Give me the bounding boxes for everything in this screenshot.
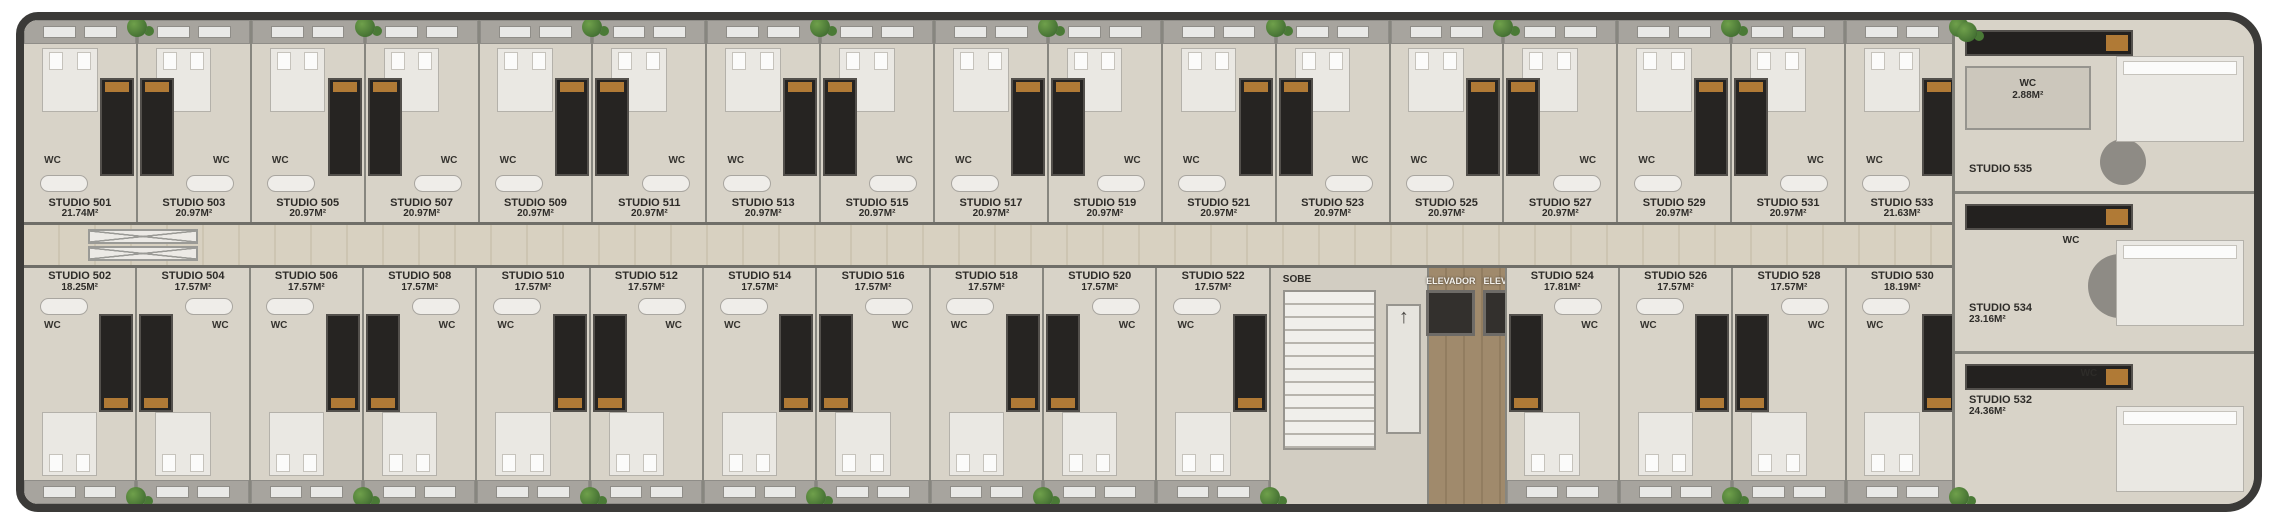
bathtub	[1092, 298, 1140, 315]
crossed-shaft-marker	[88, 229, 198, 244]
bathtub	[185, 298, 233, 315]
bathtub	[412, 298, 460, 315]
plant-icon	[580, 487, 600, 507]
bed	[42, 412, 97, 476]
plant-icon	[1721, 17, 1741, 37]
wc-label: WC	[271, 320, 288, 331]
studio-unit: WC STUDIO 523 20.97M²	[1277, 20, 1391, 222]
plant-icon	[1722, 487, 1742, 507]
studio-unit: WC STUDIO 509 20.97M²	[480, 20, 594, 222]
bed	[2116, 406, 2244, 492]
studio-unit: WC STUDIO 520 17.57M²	[1044, 268, 1157, 504]
bed	[725, 48, 781, 112]
wc-label: WC	[1411, 155, 1428, 166]
bathtub	[40, 175, 88, 192]
unit-label: STUDIO 517 20.97M²	[935, 198, 1047, 220]
wc-label: WC	[439, 320, 456, 331]
elevator-label: ELEVADOR	[1426, 276, 1475, 286]
studio-unit: WC STUDIO 511 20.97M²	[593, 20, 707, 222]
unit-area: 17.57M²	[931, 283, 1042, 294]
wc-label: WC	[896, 155, 913, 166]
plant-icon	[353, 487, 373, 507]
bed	[953, 48, 1009, 112]
unit-name: STUDIO 504	[137, 271, 248, 283]
kitchen-block	[819, 314, 853, 412]
bathtub	[1781, 298, 1829, 315]
unit-area: 23.16M²	[1969, 314, 2032, 325]
bed	[495, 412, 550, 476]
unit-area: 20.97M²	[821, 209, 933, 220]
unit-name: STUDIO 512	[591, 271, 702, 283]
bathtub	[267, 175, 315, 192]
unit-label: STUDIO 516 17.57M²	[817, 271, 928, 293]
balcony-window	[1163, 20, 1275, 44]
studio-unit: WC STUDIO 506 17.57M²	[251, 268, 364, 504]
studio-unit: WC STUDIO 515 20.97M²	[821, 20, 935, 222]
studio-unit: WC STUDIO 531 20.97M²	[1732, 20, 1846, 222]
unit-name: STUDIO 506	[251, 271, 362, 283]
wc-label: WC	[44, 320, 61, 331]
balcony-window	[1049, 20, 1161, 44]
bathtub	[1636, 298, 1684, 315]
studio-unit: WC STUDIO 516 17.57M²	[817, 268, 930, 504]
studio-unit: WC STUDIO 514 17.57M²	[704, 268, 817, 504]
wc-label: WC	[1183, 155, 1200, 166]
balcony-window	[1504, 20, 1616, 44]
unit-area: 20.97M²	[1049, 209, 1161, 220]
wc-label: WC	[1124, 155, 1141, 166]
unit-area: 20.97M²	[1732, 209, 1844, 220]
plant-icon	[355, 17, 375, 37]
wc-label: WC	[892, 320, 909, 331]
unit-area: 20.97M²	[1163, 209, 1275, 220]
kitchen-block	[1279, 78, 1313, 176]
balcony-window	[252, 20, 364, 44]
unit-label: STUDIO 535	[1969, 163, 2032, 175]
unit-label: STUDIO 531 20.97M²	[1732, 198, 1844, 220]
plant-icon	[1266, 17, 1286, 37]
unit-label: STUDIO 501 21.74M²	[24, 198, 136, 220]
bed	[2116, 56, 2244, 142]
bathtub	[1554, 298, 1602, 315]
balcony-window	[707, 20, 819, 44]
studio-unit: WC STUDIO 519 20.97M²	[1049, 20, 1163, 222]
balcony-window	[477, 480, 588, 504]
studio-unit: WC STUDIO 510 17.57M²	[477, 268, 590, 504]
bathtub	[723, 175, 771, 192]
bottom-studio-row: WC STUDIO 502 18.25M² WC STUDIO 504 17.5…	[24, 268, 1958, 504]
unit-area: 17.57M²	[477, 283, 588, 294]
unit-label: STUDIO 513 20.97M²	[707, 198, 819, 220]
rug	[2100, 139, 2146, 185]
unit-label: STUDIO 505 20.97M²	[252, 198, 364, 220]
bed	[1864, 48, 1920, 112]
bed	[835, 412, 890, 476]
kitchen-block	[1046, 314, 1080, 412]
bed	[1638, 412, 1693, 476]
studio-unit: WC STUDIO 529 20.97M²	[1618, 20, 1732, 222]
balcony-window	[1277, 20, 1389, 44]
unit-area: 20.97M²	[1504, 209, 1616, 220]
wc-label: WC	[1638, 155, 1655, 166]
unit-label: STUDIO 510 17.57M²	[477, 271, 588, 293]
unit-area: 20.97M²	[707, 209, 819, 220]
bathtub	[865, 298, 913, 315]
kitchen-block	[1239, 78, 1273, 176]
unit-area: 17.57M²	[1620, 283, 1731, 294]
kitchen-block	[368, 78, 402, 176]
unit-label: STUDIO 504 17.57M²	[137, 271, 248, 293]
kitchen-block	[1965, 30, 2133, 56]
kitchen-block	[1734, 78, 1768, 176]
unit-name: STUDIO 508	[364, 271, 475, 283]
unit-name: STUDIO 524	[1507, 271, 1618, 283]
kitchen-block	[140, 78, 174, 176]
plant-icon	[806, 487, 826, 507]
balcony-window	[364, 480, 475, 504]
bathtub	[1406, 175, 1454, 192]
plant-icon	[1949, 487, 1969, 507]
elevators: ELEVADOR ELEVADOR	[1426, 276, 1498, 336]
studio-unit: WC STUDIO 533 21.63M²	[1846, 20, 1958, 222]
studio-unit: WC STUDIO 502 18.25M²	[24, 268, 137, 504]
unit-area: 20.97M²	[935, 209, 1047, 220]
bed	[1864, 412, 1919, 476]
wc-label: WC	[1807, 155, 1824, 166]
unit-area: 20.97M²	[1391, 209, 1503, 220]
bed	[949, 412, 1004, 476]
balcony-window	[1620, 480, 1731, 504]
studio-unit: WC STUDIO 513 20.97M²	[707, 20, 821, 222]
unit-label: STUDIO 509 20.97M²	[480, 198, 592, 220]
unit-area: 20.97M²	[1277, 209, 1389, 220]
unit-name: STUDIO 522	[1157, 271, 1268, 283]
unit-name: STUDIO 518	[931, 271, 1042, 283]
unit-name: STUDIO 526	[1620, 271, 1731, 283]
studio-unit: WC STUDIO 517 20.97M²	[935, 20, 1049, 222]
balcony-window	[1732, 20, 1844, 44]
wc-label: WC	[1581, 320, 1598, 331]
kitchen-block	[1922, 314, 1956, 412]
studio-unit: WC STUDIO 508 17.57M²	[364, 268, 477, 504]
bathtub	[946, 298, 994, 315]
unit-label: STUDIO 506 17.57M²	[251, 271, 362, 293]
studio-unit: WC STUDIO 528 17.57M²	[1733, 268, 1846, 504]
balcony-window	[1507, 480, 1618, 504]
wc-label: WC	[441, 155, 458, 166]
kitchen-block	[553, 314, 587, 412]
unit-label: STUDIO 519 20.97M²	[1049, 198, 1161, 220]
unit-label: STUDIO 508 17.57M²	[364, 271, 475, 293]
wc-label: WC	[1967, 78, 2089, 90]
unit-area: 20.97M²	[480, 209, 592, 220]
studio-unit: WC STUDIO 507 20.97M²	[366, 20, 480, 222]
unit-label: STUDIO 532 24.36M²	[1969, 394, 2032, 417]
bed	[42, 48, 98, 112]
unit-label: STUDIO 520 17.57M²	[1044, 271, 1155, 293]
unit-label: STUDIO 503 20.97M²	[138, 198, 250, 220]
studio-unit: WC STUDIO 505 20.97M²	[252, 20, 366, 222]
bathtub	[1780, 175, 1828, 192]
up-arrow-icon: ↑	[1386, 304, 1421, 434]
unit-area: 24.36M²	[1969, 406, 2032, 417]
bathtub	[1862, 298, 1910, 315]
wc-label: WC	[497, 320, 514, 331]
unit-area: 17.57M²	[704, 283, 815, 294]
bathtub	[642, 175, 690, 192]
wc-label: WC	[1640, 320, 1657, 331]
kitchen-block	[326, 314, 360, 412]
bed	[1408, 48, 1464, 112]
unit-label: STUDIO 523 20.97M²	[1277, 198, 1389, 220]
unit-area: 20.97M²	[138, 209, 250, 220]
wc-label: WC	[2081, 368, 2098, 379]
unit-area: 21.74M²	[24, 209, 136, 220]
unit-name: STUDIO 532	[1969, 394, 2032, 406]
unit-label: STUDIO 526 17.57M²	[1620, 271, 1731, 293]
corridor	[24, 222, 1958, 268]
unit-area: 20.97M²	[593, 209, 705, 220]
wc-label: WC	[665, 320, 682, 331]
unit-area: 17.57M²	[591, 283, 702, 294]
bed	[269, 412, 324, 476]
elevator-door	[1483, 290, 1506, 336]
balcony-window	[1044, 480, 1155, 504]
bathtub	[493, 298, 541, 315]
unit-label: STUDIO 522 17.57M²	[1157, 271, 1268, 293]
unit-area: 20.97M²	[1618, 209, 1730, 220]
balcony-window	[591, 480, 702, 504]
bathtub	[495, 175, 543, 192]
bathtub	[266, 298, 314, 315]
unit-label: STUDIO 514 17.57M²	[704, 271, 815, 293]
unit-label: STUDIO 533 21.63M²	[1846, 198, 1958, 220]
bed	[1751, 412, 1806, 476]
unit-area: 20.97M²	[252, 209, 364, 220]
unit-name: STUDIO 520	[1044, 271, 1155, 283]
elevator: ELEVADOR	[1483, 276, 1506, 336]
kitchen-block	[1735, 314, 1769, 412]
bathtub	[1173, 298, 1221, 315]
bathtub	[1178, 175, 1226, 192]
unit-name: STUDIO 535	[1969, 163, 2032, 175]
kitchen-block	[328, 78, 362, 176]
bathtub	[1862, 175, 1910, 192]
wc-label: WC	[951, 320, 968, 331]
wc-label: WC	[500, 155, 517, 166]
unit-name: STUDIO 514	[704, 271, 815, 283]
bed	[382, 412, 437, 476]
bathtub	[951, 175, 999, 192]
unit-label: STUDIO 518 17.57M²	[931, 271, 1042, 293]
unit-area: 18.19M²	[1847, 283, 1958, 294]
bed	[1175, 412, 1230, 476]
unit-area: 17.57M²	[137, 283, 248, 294]
balcony-window	[1618, 20, 1730, 44]
unit-name: STUDIO 530	[1847, 271, 1958, 283]
balcony-window	[251, 480, 362, 504]
balcony-window	[1847, 480, 1958, 504]
balcony-window	[1157, 480, 1268, 504]
bed	[1181, 48, 1237, 112]
kitchen-block	[1011, 78, 1045, 176]
right-wing: WC 2.88M² STUDIO 535 WC STUDIO 534 23.16…	[1952, 20, 2254, 504]
bathtub	[1634, 175, 1682, 192]
studio-unit: WC STUDIO 512 17.57M²	[591, 268, 704, 504]
unit-name: STUDIO 510	[477, 271, 588, 283]
wc-label: WC	[1808, 320, 1825, 331]
wc-label: WC	[2063, 235, 2080, 246]
unit-label: STUDIO 512 17.57M²	[591, 271, 702, 293]
crossed-shaft-marker	[88, 246, 198, 261]
kitchen-block	[1233, 314, 1267, 412]
bathtub	[1553, 175, 1601, 192]
unit-name: STUDIO 528	[1733, 271, 1844, 283]
unit-area: 17.57M²	[1733, 283, 1844, 294]
bathtub	[869, 175, 917, 192]
balcony-window	[138, 20, 250, 44]
unit-area: 18.25M²	[24, 283, 135, 294]
balcony-window	[1391, 20, 1503, 44]
bed	[270, 48, 326, 112]
bathtub	[638, 298, 686, 315]
studio-unit: WC STUDIO 522 17.57M²	[1157, 268, 1270, 504]
unit-area: 17.81M²	[1507, 283, 1618, 294]
unit-label: STUDIO 507 20.97M²	[366, 198, 478, 220]
balcony-window	[1846, 20, 1958, 44]
studio-unit: WC STUDIO 503 20.97M²	[138, 20, 252, 222]
kitchen-block	[366, 314, 400, 412]
elevator-door	[1426, 290, 1475, 336]
stairs-elevator-core: SOBE ↑ ELEVADOR ELEVADOR	[1271, 268, 1507, 504]
unit-area: 17.57M²	[1044, 283, 1155, 294]
bed	[2116, 240, 2244, 326]
floorplan: WC STUDIO 501 21.74M² WC STUDIO 503 20.9…	[0, 0, 2280, 526]
wc-label: WC	[1177, 320, 1194, 331]
kitchen-block	[593, 314, 627, 412]
wc-label: WC	[1867, 320, 1884, 331]
unit-label: STUDIO 524 17.81M²	[1507, 271, 1618, 293]
plant-icon	[127, 17, 147, 37]
elevator: ELEVADOR	[1426, 276, 1475, 336]
studio-unit: WC STUDIO 524 17.81M²	[1507, 268, 1620, 504]
unit-label: STUDIO 529 20.97M²	[1618, 198, 1730, 220]
wc-area: 2.88M²	[1967, 90, 2089, 102]
plant-icon	[1957, 22, 1977, 42]
balcony-window	[24, 480, 135, 504]
studio-unit: WC STUDIO 521 20.97M²	[1163, 20, 1277, 222]
unit-label: STUDIO 525 20.97M²	[1391, 198, 1503, 220]
top-studio-row: WC STUDIO 501 21.74M² WC STUDIO 503 20.9…	[24, 20, 1958, 222]
wc-label: WC	[724, 320, 741, 331]
kitchen-block	[1965, 364, 2133, 390]
wc-label: WC	[727, 155, 744, 166]
bed	[609, 412, 664, 476]
unit-name: STUDIO 516	[817, 271, 928, 283]
wc-label: WC	[668, 155, 685, 166]
kitchen-block	[779, 314, 813, 412]
bed	[155, 412, 210, 476]
studio-unit: WC STUDIO 518 17.57M²	[931, 268, 1044, 504]
unit-area: 20.97M²	[366, 209, 478, 220]
unit-area: 17.57M²	[817, 283, 928, 294]
wc-label: WC	[44, 155, 61, 166]
studio-unit: WC STUDIO 501 21.74M²	[24, 20, 138, 222]
bed	[722, 412, 777, 476]
unit-name: STUDIO 502	[24, 271, 135, 283]
unit-area: 17.57M²	[1157, 283, 1268, 294]
plant-icon	[810, 17, 830, 37]
balcony-window	[704, 480, 815, 504]
wc-label: WC	[1119, 320, 1136, 331]
studio-unit-535: WC 2.88M² STUDIO 535	[1955, 20, 2254, 194]
studio-unit: WC STUDIO 527 20.97M²	[1504, 20, 1618, 222]
balcony-window	[593, 20, 705, 44]
unit-label: STUDIO 534 23.16M²	[1969, 302, 2032, 325]
kitchen-block	[139, 314, 173, 412]
unit-label: STUDIO 530 18.19M²	[1847, 271, 1958, 293]
studio-unit-534: WC STUDIO 534 23.16M²	[1955, 194, 2254, 354]
studio-unit: WC STUDIO 525 20.97M²	[1391, 20, 1505, 222]
wc-label: WC	[212, 320, 229, 331]
bed	[497, 48, 553, 112]
balcony-window	[366, 20, 478, 44]
bathtub	[1325, 175, 1373, 192]
bathtub	[414, 175, 462, 192]
kitchen-block	[1051, 78, 1085, 176]
bathtub	[40, 298, 88, 315]
studio-unit: WC STUDIO 526 17.57M²	[1620, 268, 1733, 504]
kitchen-block	[823, 78, 857, 176]
kitchen-block	[1506, 78, 1540, 176]
balcony-window	[821, 20, 933, 44]
building-outline: WC STUDIO 501 21.74M² WC STUDIO 503 20.9…	[16, 12, 2262, 512]
stairs	[1283, 290, 1377, 450]
unit-label: STUDIO 502 18.25M²	[24, 271, 135, 293]
kitchen-block	[1509, 314, 1543, 412]
kitchen-block	[1466, 78, 1500, 176]
unit-label: STUDIO 515 20.97M²	[821, 198, 933, 220]
wc-label: WC	[1866, 155, 1883, 166]
unit-label: STUDIO 521 20.97M²	[1163, 198, 1275, 220]
kitchen-block	[100, 78, 134, 176]
wc-label: WC	[1352, 155, 1369, 166]
unit-label: STUDIO 511 20.97M²	[593, 198, 705, 220]
plant-icon	[1033, 487, 1053, 507]
unit-label: STUDIO 527 20.97M²	[1504, 198, 1616, 220]
balcony-window	[137, 480, 248, 504]
kitchen-block	[783, 78, 817, 176]
elevator-label: ELEVADOR	[1483, 276, 1506, 286]
balcony-window	[931, 480, 1042, 504]
wc-label: WC	[955, 155, 972, 166]
unit-name: STUDIO 534	[1969, 302, 2032, 314]
wc-label: WC	[272, 155, 289, 166]
kitchen-block	[1922, 78, 1956, 176]
plant-icon	[126, 487, 146, 507]
balcony-window	[24, 20, 136, 44]
kitchen-block	[595, 78, 629, 176]
bathtub	[186, 175, 234, 192]
kitchen-block	[99, 314, 133, 412]
kitchen-block	[1694, 78, 1728, 176]
studio-unit-532: WC STUDIO 532 24.36M²	[1955, 354, 2254, 504]
unit-area: 21.63M²	[1846, 209, 1958, 220]
unit-area: 17.57M²	[364, 283, 475, 294]
wc-label: WC	[213, 155, 230, 166]
balcony-window	[480, 20, 592, 44]
balcony-window	[1733, 480, 1844, 504]
